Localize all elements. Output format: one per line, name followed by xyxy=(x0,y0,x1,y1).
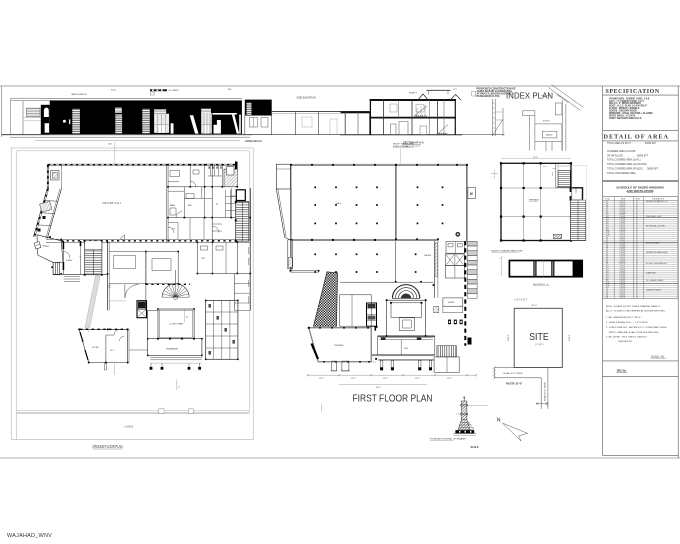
svg-text:1'-6"x1'-6": 1'-6"x1'-6" xyxy=(620,226,627,228)
svg-text:PESHAWAR (K.P.K): PESHAWAR (K.P.K) xyxy=(477,95,500,98)
svg-text:KIT.: KIT. xyxy=(172,229,176,231)
svg-text:VER.: VER. xyxy=(404,348,409,350)
svg-text:4'-6"x4'-6": 4'-6"x4'-6" xyxy=(620,222,627,224)
svg-text:W-8: W-8 xyxy=(606,227,609,229)
svg-text:70'-0": 70'-0" xyxy=(533,157,538,159)
svg-text:01: 01 xyxy=(636,209,638,211)
svg-text:2'-6"x4'-6": 2'-6"x4'-6" xyxy=(620,214,627,216)
svg-text:2'-0"x1'-6": 2'-0"x1'-6" xyxy=(620,254,627,256)
svg-text:PRAYER HALL: PRAYER HALL xyxy=(103,202,122,205)
svg-text:04: 04 xyxy=(636,267,638,269)
svg-text:G.I. SHEET: G.I. SHEET xyxy=(169,90,180,92)
svg-text:V-8: V-8 xyxy=(606,250,608,252)
svg-text:AND VENTILATORS: AND VENTILATORS xyxy=(626,189,653,193)
svg-text:03: 03 xyxy=(636,284,638,286)
svg-text:02: 02 xyxy=(636,203,638,205)
svg-text:TOTAL COVERED AREA (1st FL.): TOTAL COVERED AREA (1st FL.) xyxy=(607,159,641,162)
svg-text:1'-6"x1'-6": 1'-6"x1'-6" xyxy=(620,286,627,288)
svg-text:V-4: V-4 xyxy=(606,243,608,245)
svg-text:104': 104' xyxy=(108,144,112,146)
svg-text:03: 03 xyxy=(636,248,638,250)
svg-text:SCHOOL: SCHOOL xyxy=(543,121,550,123)
svg-text:4'-0"x4'-6": 4'-0"x4'-6" xyxy=(620,209,627,211)
svg-text:5'-0"x4'-6": 5'-0"x4'-6" xyxy=(620,220,627,222)
svg-text:02: 02 xyxy=(636,273,638,275)
svg-text:3'-0"x7'-0": 3'-0"x7'-0" xyxy=(620,205,627,207)
svg-text:06: 06 xyxy=(636,275,638,277)
svg-text:IMAM: IMAM xyxy=(170,204,175,207)
svg-text:D-3: D-3 xyxy=(606,256,608,258)
svg-text:4'-0"x7'-0": 4'-0"x7'-0" xyxy=(620,231,627,233)
svg-text:01: 01 xyxy=(636,229,638,231)
svg-text:NOTE : PLEASE DO NOT SCALE: NOTE : PLEASE DO NOT SCALE DRAWING ‘READ… xyxy=(606,305,661,308)
svg-text:GROUND FLOOR PLAN: GROUND FLOOR PLAN xyxy=(93,444,123,449)
svg-text:W-3: W-3 xyxy=(606,269,609,271)
svg-text:02: 02 xyxy=(636,243,638,245)
svg-text:6'-0"x4'-6": 6'-0"x4'-6" xyxy=(620,278,627,280)
svg-text:DETAIL OF AREA: DETAIL OF AREA xyxy=(604,134,669,141)
svg-text:3'-0"x4'-6": 3'-0"x4'-6" xyxy=(620,243,627,245)
svg-text:3'-6"x7'-0": 3'-6"x7'-0" xyxy=(620,293,627,295)
svg-text:SITE: SITE xyxy=(529,332,549,343)
svg-text:D-5: D-5 xyxy=(606,209,608,211)
svg-text:1'-6"x1'-6": 1'-6"x1'-6" xyxy=(620,256,627,258)
svg-text:D-7: D-7 xyxy=(606,212,608,214)
svg-text:04: 04 xyxy=(636,292,638,294)
svg-text:01: 01 xyxy=(636,271,638,273)
svg-text:5'-0"x4'-6": 5'-0"x4'-6" xyxy=(620,250,627,252)
svg-text:D-1: D-1 xyxy=(606,201,608,203)
svg-text:2'-6"x1'-6": 2'-6"x1'-6" xyxy=(620,227,627,229)
svg-text:SIZE: SIZE xyxy=(621,198,626,200)
svg-text:TERRACE: TERRACE xyxy=(334,344,344,347)
svg-text:01: 01 xyxy=(636,280,638,282)
svg-text:3'-0"x7'-0": 3'-0"x7'-0" xyxy=(620,265,627,267)
svg-text:( P-127 ): ( P-127 ) xyxy=(535,344,544,346)
svg-text:02: 02 xyxy=(636,263,638,265)
svg-text:06: 06 xyxy=(636,224,638,226)
svg-text:4 . ALL WORK : P.B.S. SPECS: 4 . ALL WORK : P.B.S. SPECS. (LATEST) xyxy=(606,336,647,339)
svg-text:01: 01 xyxy=(636,246,638,248)
svg-text:W-11: W-11 xyxy=(606,233,609,235)
svg-text:S. No: S. No xyxy=(605,198,610,200)
svg-text:W-6: W-6 xyxy=(606,275,609,277)
svg-text:2'-0"x1'-6": 2'-0"x1'-6" xyxy=(620,224,627,226)
svg-text:08: 08 xyxy=(636,265,638,267)
svg-text:W-5: W-5 xyxy=(606,273,609,275)
svg-text:W-10: W-10 xyxy=(606,282,609,284)
svg-text:01: 01 xyxy=(636,220,638,222)
svg-text:02: 02 xyxy=(636,282,638,284)
svg-text:OF GR FLOOR . . . . . . . . .: OF GR FLOOR . . . . . . . . . . . 18259 … xyxy=(607,155,649,157)
svg-text:3'-0"x4'-6": 3'-0"x4'-6" xyxy=(620,212,627,214)
svg-text:2'-0"x1'-6": 2'-0"x1'-6" xyxy=(620,284,627,286)
svg-text:SEPTIC TANK AND SOAK PIT: SEPTIC TANK AND SOAK PIT AS PER PHE DWG. xyxy=(609,331,659,334)
svg-text:TERRACE: TERRACE xyxy=(529,199,540,202)
svg-text:SPECIFICATION: SPECIFICATION xyxy=(606,89,660,95)
svg-text:02: 02 xyxy=(636,269,638,271)
svg-text:WAJAHAD_WNV: WAJAHAD_WNV xyxy=(7,533,52,539)
svg-text:D-4: D-4 xyxy=(606,258,608,260)
svg-text:04: 04 xyxy=(636,256,638,258)
svg-text:12'-0": 12'-0" xyxy=(383,378,388,380)
svg-text:W-9: W-9 xyxy=(606,280,609,282)
svg-text:V-1: V-1 xyxy=(606,237,608,239)
svg-text:W-7: W-7 xyxy=(606,276,609,278)
svg-text:SCALE 1/8"=1'-0": SCALE 1/8"=1'-0" xyxy=(246,140,263,143)
svg-text:D-5: D-5 xyxy=(606,259,608,261)
svg-text:3'-6"x4'-6": 3'-6"x4'-6" xyxy=(620,210,627,212)
svg-text:V-6: V-6 xyxy=(606,246,608,248)
svg-text:LADIES: LADIES xyxy=(448,301,455,304)
svg-text:V-7: V-7 xyxy=(606,248,608,250)
svg-text:W-2: W-2 xyxy=(606,216,609,218)
svg-text:HALL: HALL xyxy=(336,202,342,205)
svg-text:05: 05 xyxy=(636,235,638,237)
svg-text:02: 02 xyxy=(636,227,638,229)
svg-text:W.C.: W.C. xyxy=(110,350,115,352)
svg-text:FOUNDATION DETAIL OF MINARET: FOUNDATION DETAIL OF MINARET xyxy=(430,438,467,441)
svg-text:3'-6"x4'-6": 3'-6"x4'-6" xyxy=(620,241,627,243)
svg-text:OFF.: OFF. xyxy=(201,258,206,260)
svg-text:2'-6"x1'-6": 2'-6"x1'-6" xyxy=(620,258,627,260)
svg-text:VER.: VER. xyxy=(45,246,50,248)
svg-text:1 . ALL DIMENSIONS IN FT: 1 . ALL DIMENSIONS IN FT / INCH xyxy=(606,316,641,319)
svg-text:TOTAL COVERED AREA (2nd FLOOR): TOTAL COVERED AREA (2nd FLOOR) xyxy=(607,163,647,166)
svg-text:2'-6"x1'-6": 2'-6"x1'-6" xyxy=(620,288,627,290)
svg-text:D-7: D-7 xyxy=(606,263,608,265)
svg-text:04: 04 xyxy=(636,241,638,243)
svg-text:W-3: W-3 xyxy=(606,218,609,220)
svg-text:N: N xyxy=(497,418,501,424)
svg-text:01: 01 xyxy=(636,259,638,261)
svg-text:2'-6"x4'-6": 2'-6"x4'-6" xyxy=(620,244,627,246)
svg-text:12'-0": 12'-0" xyxy=(447,378,452,380)
svg-text:V-3: V-3 xyxy=(606,292,608,294)
svg-text:06: 06 xyxy=(636,258,638,260)
svg-text:2'-6"x7'-0": 2'-6"x7'-0" xyxy=(620,207,627,209)
svg-text:36'-0": 36'-0" xyxy=(376,387,381,389)
svg-text:W-12: W-12 xyxy=(606,286,609,288)
svg-text:D-2: D-2 xyxy=(606,203,608,205)
svg-text:MUMTY & WATER TANK PLAN: MUMTY & WATER TANK PLAN xyxy=(492,249,523,252)
svg-text:MAIN ELEVATION: MAIN ELEVATION xyxy=(72,93,88,96)
svg-text:12'-0": 12'-0" xyxy=(351,378,356,380)
svg-text:02: 02 xyxy=(636,250,638,252)
svg-text:STORE: STORE xyxy=(92,347,99,349)
svg-text:4'-6"x4'-6": 4'-6"x4'-6" xyxy=(620,282,627,284)
svg-text:2'-6"x7'-0": 2'-6"x7'-0" xyxy=(620,297,627,299)
svg-text:4'-0"x7'-0": 4'-0"x7'-0" xyxy=(620,292,627,294)
svg-text:02: 02 xyxy=(636,237,638,239)
svg-text:01: 01 xyxy=(636,201,638,203)
svg-text:ROAD 20'-0" WIDE: ROAD 20'-0" WIDE xyxy=(504,372,523,375)
svg-text:2'-0"x4'-6": 2'-0"x4'-6" xyxy=(620,246,627,248)
svg-text:MUMTY: MUMTY xyxy=(409,93,418,95)
svg-text:L A W N: L A W N xyxy=(125,426,134,429)
svg-text:02: 02 xyxy=(636,288,638,290)
svg-text:6'-0"x4'-6": 6'-0"x4'-6" xyxy=(620,248,627,250)
svg-text:V-5: V-5 xyxy=(606,295,608,297)
svg-text:MASJID: MASJID xyxy=(546,134,553,137)
svg-text:3'-6"x7'-0": 3'-6"x7'-0" xyxy=(620,233,627,235)
svg-text:4'-0"x7'-0": 4'-0"x7'-0" xyxy=(620,201,627,203)
svg-text:04: 04 xyxy=(636,226,638,228)
svg-text:4'-0"x4'-6": 4'-0"x4'-6" xyxy=(620,239,627,241)
svg-text:D-6: D-6 xyxy=(606,261,608,263)
svg-text:5'-0"x4'-6": 5'-0"x4'-6" xyxy=(620,280,627,282)
svg-text:2'-0"x2'-0": 2'-0"x2'-0" xyxy=(620,229,627,231)
svg-text:W-6: W-6 xyxy=(606,224,609,226)
svg-text:D-1: D-1 xyxy=(606,252,608,254)
svg-text:W: W xyxy=(470,192,473,196)
svg-text:02: 02 xyxy=(636,293,638,295)
svg-text:TOTAL AREA OF PLOT . . . . . .: TOTAL AREA OF PLOT . . . . . . . . . . .… xyxy=(607,142,657,145)
svg-text:V-2: V-2 xyxy=(606,290,608,292)
svg-text:2'-6"x7'-0": 2'-6"x7'-0" xyxy=(620,237,627,239)
svg-text:LOBBY: LOBBY xyxy=(66,260,73,262)
svg-text:V-5: V-5 xyxy=(606,244,608,246)
svg-text:W-9: W-9 xyxy=(606,229,609,231)
svg-text:01: 01 xyxy=(636,252,638,254)
svg-text:2'-0"x4'-6": 2'-0"x4'-6" xyxy=(620,216,627,218)
svg-text:02: 02 xyxy=(636,295,638,297)
svg-text:4'-6"x4'-6": 4'-6"x4'-6" xyxy=(620,252,627,254)
svg-text:3'-0"x7'-0": 3'-0"x7'-0" xyxy=(620,235,627,237)
svg-text:D-2: D-2 xyxy=(606,254,608,256)
svg-text:SIDE ELEVATION: SIDE ELEVATION xyxy=(297,97,317,100)
svg-text:12'-0": 12'-0" xyxy=(319,378,324,380)
svg-text:COURT YARD: COURT YARD xyxy=(169,323,184,326)
svg-text:W-4: W-4 xyxy=(606,271,609,273)
svg-text:DRG No.: DRG No. xyxy=(617,369,627,372)
svg-text:CHECKED BY :: CHECKED BY : xyxy=(618,341,634,343)
svg-text:W-2: W-2 xyxy=(606,267,609,269)
svg-text:BED: BED xyxy=(188,205,193,207)
svg-text:45'-0": 45'-0" xyxy=(532,305,538,307)
svg-text:V-2: V-2 xyxy=(606,239,608,241)
svg-text:V-6: V-6 xyxy=(606,297,608,299)
svg-text:VERANDAH: VERANDAH xyxy=(166,347,179,350)
svg-text:12'-0": 12'-0" xyxy=(415,378,420,380)
svg-text:W-10: W-10 xyxy=(606,231,609,233)
svg-text:2'-6"x7'-0": 2'-6"x7'-0" xyxy=(620,267,627,269)
svg-text:124'-0": 124'-0" xyxy=(569,334,571,341)
svg-text:V-4: V-4 xyxy=(606,293,608,295)
svg-text:01: 01 xyxy=(636,297,638,299)
svg-text:W-5: W-5 xyxy=(606,222,609,224)
svg-text:01: 01 xyxy=(636,290,638,292)
svg-text:RASTA 15'-0": RASTA 15'-0" xyxy=(506,381,523,385)
svg-text:PAINT: WEATHER SHIELD O.K: PAINT: WEATHER SHIELD O.K. xyxy=(609,117,642,120)
svg-text:02: 02 xyxy=(636,254,638,256)
svg-text:02: 02 xyxy=(636,212,638,214)
svg-text:LADIES: LADIES xyxy=(424,254,432,257)
svg-text:FIRST FLOOR PLAN: FIRST FLOOR PLAN xyxy=(353,393,433,404)
svg-text:L A Y O U T: L A Y O U T xyxy=(515,298,528,301)
svg-text:08: 08 xyxy=(636,214,638,216)
svg-text:W-7: W-7 xyxy=(606,226,609,228)
svg-text:D-4: D-4 xyxy=(606,207,608,209)
svg-text:W-12: W-12 xyxy=(606,235,609,237)
svg-text:02: 02 xyxy=(636,244,638,246)
svg-text:SCALE: SCALE xyxy=(471,446,480,449)
svg-text:2 . LEVELS REFER N.G.L. +: 2 . LEVELS REFER N.G.L. + 1'-6" PLINTH xyxy=(606,322,648,324)
svg-text:MUMTY WATER TANK: MUMTY WATER TANK xyxy=(393,142,414,145)
svg-text:COVERED AREA G.FLOOR: COVERED AREA G.FLOOR xyxy=(607,150,636,153)
svg-text:06: 06 xyxy=(636,207,638,209)
svg-text:W-4: W-4 xyxy=(606,220,609,222)
svg-text:03: 03 xyxy=(636,210,638,212)
svg-text:6'-0"x4'-6": 6'-0"x4'-6" xyxy=(620,218,627,220)
svg-text:03: 03 xyxy=(636,261,638,263)
svg-text:3 . STRUCTURE DET : AS PER: 3 . STRUCTURE DET : AS PER R.C.C. CONSUL… xyxy=(606,326,667,329)
svg-text:TOTAL COVERED AREA OF BLDG . .: TOTAL COVERED AREA OF BLDG . . . 30000 S… xyxy=(607,167,659,170)
svg-text:02: 02 xyxy=(636,231,638,233)
svg-text:LIB.: LIB. xyxy=(42,246,46,248)
svg-text:D-3: D-3 xyxy=(606,205,608,207)
svg-text:ALL D / W SIZES TO BE VE: ALL D / W SIZES TO BE VERIFIED AT SITE B… xyxy=(606,310,666,313)
svg-text:04: 04 xyxy=(636,205,638,207)
svg-text:W-8: W-8 xyxy=(606,278,609,280)
svg-text:W-11: W-11 xyxy=(606,284,609,286)
svg-text:2'-0"x2'-0": 2'-0"x2'-0" xyxy=(620,290,627,292)
svg-text:N.G.L: N.G.L xyxy=(111,89,117,91)
svg-text:3'-6"x4'-6": 3'-6"x4'-6" xyxy=(620,271,627,273)
svg-text:3'-0"x4'-6": 3'-0"x4'-6" xyxy=(620,273,627,275)
svg-text:SCALE : AS: SCALE : AS xyxy=(651,355,664,358)
svg-text:D-6: D-6 xyxy=(606,210,608,212)
svg-text:ROAD 30'-0" WIDE: ROAD 30'-0" WIDE xyxy=(544,382,547,401)
svg-text:2'-0"x4'-6": 2'-0"x4'-6" xyxy=(620,276,627,278)
svg-text:3'-6"x7'-0": 3'-6"x7'-0" xyxy=(620,263,627,265)
svg-text:V-3: V-3 xyxy=(606,241,608,243)
svg-text:TOTAL UNCOVERED AREA: TOTAL UNCOVERED AREA xyxy=(607,172,636,175)
svg-text:W-1: W-1 xyxy=(606,265,609,267)
svg-text:INDEX PLAN: INDEX PLAN xyxy=(506,92,553,101)
svg-text:04: 04 xyxy=(636,276,638,278)
svg-text:02: 02 xyxy=(636,222,638,224)
svg-text:02: 02 xyxy=(636,218,638,220)
svg-text:05: 05 xyxy=(636,286,638,288)
svg-text:2'-0"x2'-0": 2'-0"x2'-0" xyxy=(620,259,627,261)
svg-text:V-1: V-1 xyxy=(606,288,608,290)
svg-text:3'-6"x7'-0": 3'-6"x7'-0" xyxy=(620,203,627,205)
svg-text:02: 02 xyxy=(636,278,638,280)
svg-text:W-1: W-1 xyxy=(606,214,609,216)
svg-text:4'-0"x7'-0": 4'-0"x7'-0" xyxy=(620,261,627,263)
svg-text:124'-0": 124'-0" xyxy=(508,334,510,341)
svg-text:04: 04 xyxy=(636,216,638,218)
svg-text:4'-0"x4'-6": 4'-0"x4'-6" xyxy=(620,269,627,271)
svg-text:R E M A R K S: R E M A R K S xyxy=(652,197,665,200)
svg-text:2'-6"x4'-6": 2'-6"x4'-6" xyxy=(620,275,627,277)
svg-text:03: 03 xyxy=(636,233,638,235)
svg-text:3'-0"x7'-0": 3'-0"x7'-0" xyxy=(620,295,627,297)
svg-text:01: 01 xyxy=(636,239,638,241)
